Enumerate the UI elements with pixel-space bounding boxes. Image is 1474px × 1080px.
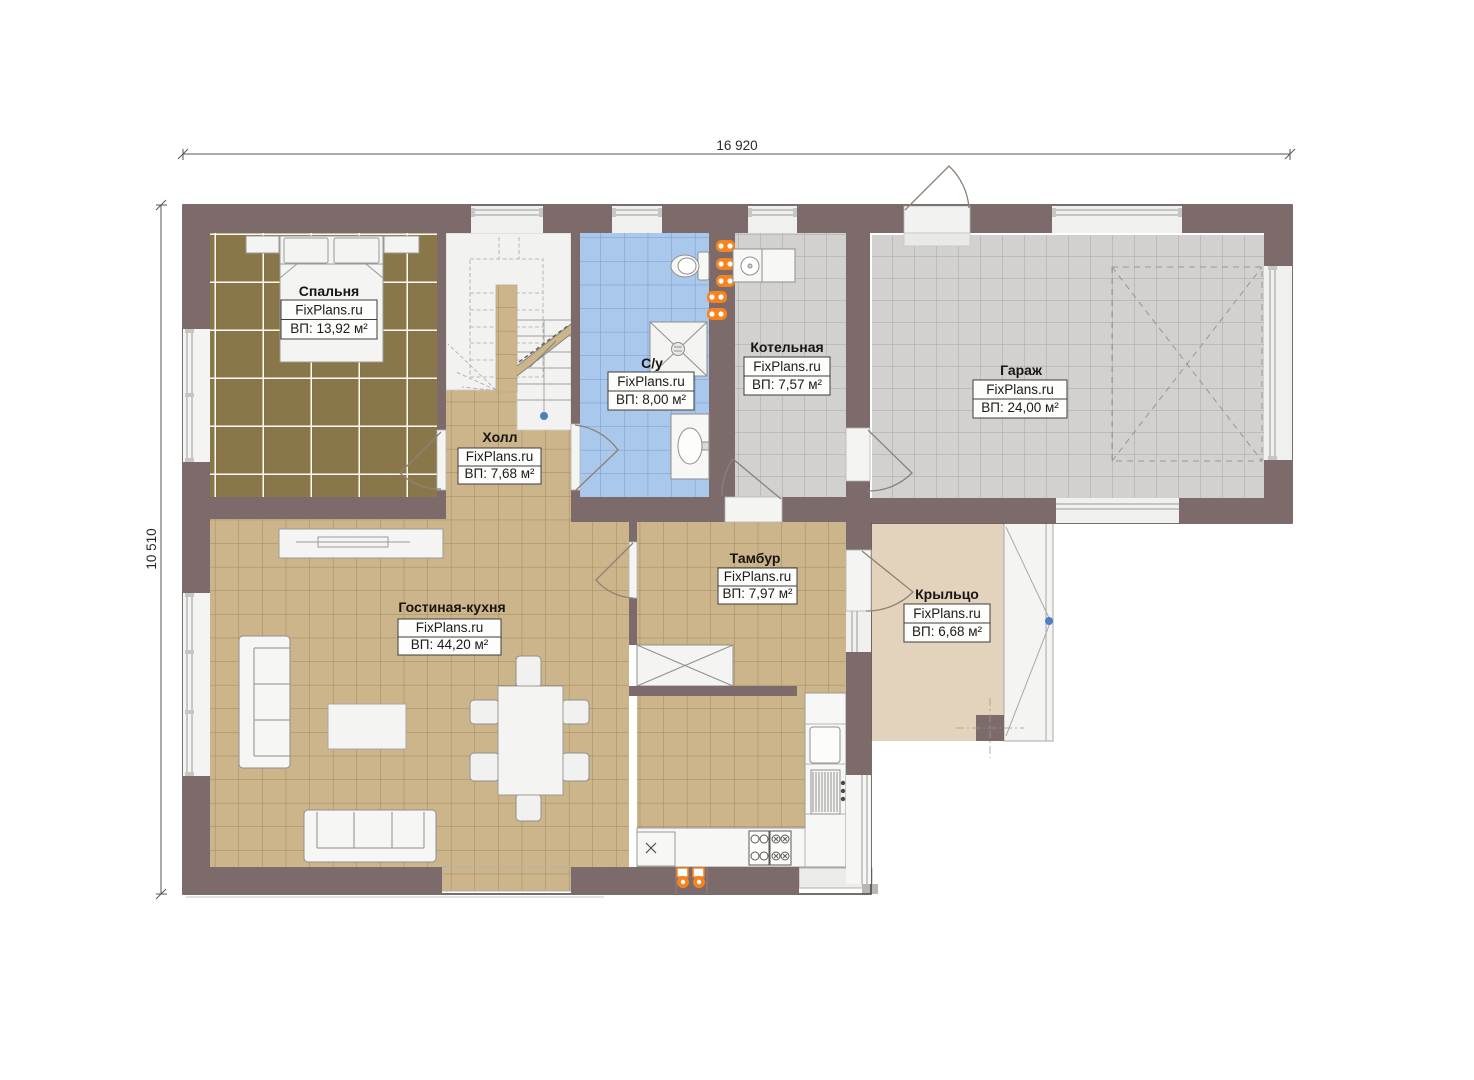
svg-text:ВП: 7,68 м²: ВП: 7,68 м² (464, 466, 535, 481)
svg-text:ВП: 24,00 м²: ВП: 24,00 м² (981, 400, 1059, 415)
svg-text:Спальня: Спальня (299, 283, 359, 299)
svg-text:ВП: 13,92 м²: ВП: 13,92 м² (290, 321, 368, 336)
svg-text:FixPlans.ru: FixPlans.ru (466, 449, 534, 464)
svg-text:16 920: 16 920 (716, 138, 757, 153)
svg-text:FixPlans.ru: FixPlans.ru (617, 374, 685, 389)
svg-text:Гараж: Гараж (1000, 362, 1043, 378)
svg-text:ВП: 6,68 м²: ВП: 6,68 м² (912, 624, 983, 639)
svg-text:ВП: 44,20 м²: ВП: 44,20 м² (411, 637, 489, 652)
svg-text:FixPlans.ru: FixPlans.ru (913, 606, 981, 621)
svg-text:FixPlans.ru: FixPlans.ru (416, 620, 484, 635)
svg-text:Крыльцо: Крыльцо (915, 586, 979, 602)
svg-text:FixPlans.ru: FixPlans.ru (724, 569, 792, 584)
svg-text:FixPlans.ru: FixPlans.ru (986, 382, 1054, 397)
svg-text:FixPlans.ru: FixPlans.ru (295, 303, 363, 318)
svg-text:Холл: Холл (482, 429, 517, 445)
svg-text:Тамбур: Тамбур (730, 550, 781, 566)
svg-text:Котельная: Котельная (750, 339, 823, 355)
svg-text:ВП: 7,57 м²: ВП: 7,57 м² (752, 377, 823, 392)
svg-text:FixPlans.ru: FixPlans.ru (753, 359, 821, 374)
svg-text:10 510: 10 510 (144, 528, 159, 569)
svg-text:ВП: 8,00 м²: ВП: 8,00 м² (616, 392, 687, 407)
svg-text:С/у: С/у (641, 355, 663, 371)
svg-text:ВП: 7,97 м²: ВП: 7,97 м² (722, 586, 793, 601)
svg-text:Гостиная-кухня: Гостиная-кухня (398, 599, 505, 615)
